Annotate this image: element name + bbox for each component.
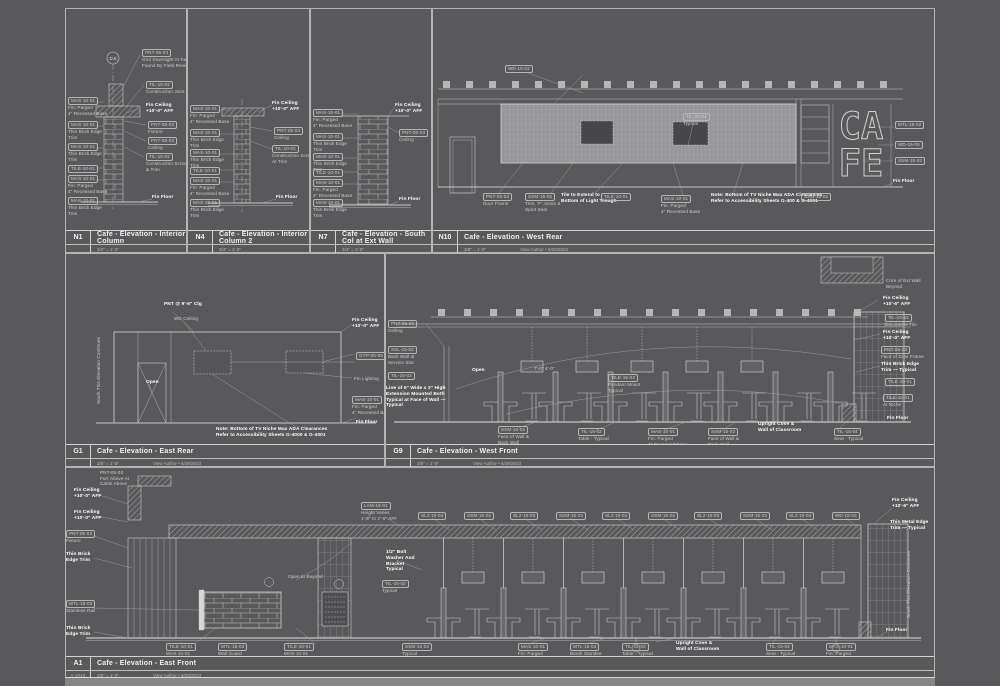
viewport-n4[interactable]: MAS-10-01Fin: Parged4" Recessed BaseMAS-… [187, 8, 310, 253]
panel-title: Cafe - Elevation - South Col at Ext Wall [336, 231, 431, 244]
panel-number: N10 [433, 231, 458, 244]
wall-opening [581, 121, 613, 144]
panel-meta-left [311, 245, 336, 253]
drawing-g1 [66, 254, 384, 444]
keynote-bubble [265, 578, 274, 587]
drawing-a1 [66, 468, 934, 656]
viewport-title-a1: A1 Cafe - Elevation - East Front A-101S … [66, 656, 934, 678]
panel-meta: View Author • 6/29/2023 [149, 461, 201, 466]
viewport-n7[interactable]: MAS-10-01Fin: Parged4" Recessed BaseMAS-… [310, 8, 432, 253]
soffit [138, 476, 171, 486]
drawing-area-n4: MAS-10-01Fin: Parged4" Recessed BaseMAS-… [188, 9, 309, 230]
drawing-area-n10: CA FE WD-15-02TIL-10-02TypicalPNT-05-03D… [433, 9, 934, 230]
panel-number: N7 [311, 231, 336, 244]
panel-meta-left [66, 459, 91, 467]
grid-bubble-label: D.6 [109, 56, 117, 61]
panel-meta: View Author • 6/29/2023 [516, 247, 568, 252]
drawing-area-n7: MAS-10-01Fin: Parged4" Recessed BaseMAS-… [311, 9, 431, 230]
tiled-wall [868, 524, 908, 638]
tv-niche [194, 351, 231, 374]
booth-partition-poles [444, 538, 804, 588]
panel-scale: 3/4" = 1'-0" [336, 247, 394, 252]
viewport-n10[interactable]: CA FE WD-15-02TIL-10-02TypicalPNT-05-03D… [432, 8, 935, 253]
panel-meta-left [66, 245, 91, 253]
wall-opening [673, 122, 708, 145]
panel-scale: 3/4" = 1'-0" [213, 247, 271, 252]
panel-number: A1 [66, 657, 91, 670]
panel-title: Cafe - Elevation - Interior Column [91, 231, 186, 244]
sheet-edge-strip [65, 677, 935, 686]
drawing-g9 [386, 254, 934, 444]
drawing-n7 [311, 9, 431, 230]
panel-title: Cafe - Elevation - West Front [411, 445, 518, 458]
keynote-bubble [632, 644, 640, 652]
keynote-bubble [832, 644, 840, 652]
panel-meta-left [433, 245, 458, 253]
drawing-area-n1: D.6 MAS-10-01Fin: Parged4" Recessed Base… [66, 9, 186, 230]
panel-title: Cafe - Elevation - West Rear [458, 231, 562, 244]
wall-outline [114, 332, 341, 423]
viewport-title-g9: G9 Cafe - Elevation - West Front 3/8" = … [386, 444, 934, 466]
drawing-n1: D.6 [66, 9, 186, 230]
panel-number: G9 [386, 445, 411, 458]
panel-title: Cafe - Elevation - East Front [91, 657, 196, 670]
tiled-wall [854, 312, 904, 422]
viewport-title-n1: N1 Cafe - Elevation - Interior Column 3/… [66, 230, 186, 252]
drawing-n10: CA FE [433, 9, 934, 230]
viewport-a1[interactable]: PNT-05-03Furr Above AtCable AboveFin Cei… [65, 467, 935, 679]
drawing-area-g9: PNT-05-03CeilingSSL-15-02Back Wall atSer… [386, 254, 934, 444]
panel-title: Cafe - Elevation - Interior Column 2 [213, 231, 309, 244]
panel-meta-left [386, 459, 411, 467]
panel-number: G1 [66, 445, 91, 458]
viewport-g1[interactable]: PNT @ 9'-6" ClgWD CeilingOpenSouth This … [65, 253, 385, 467]
panel-scale: 3/8" = 1'-0" [91, 461, 149, 466]
cafe-sign: CA FE [839, 105, 884, 185]
viewport-g9[interactable]: PNT-05-03CeilingSSL-15-02Back Wall atSer… [385, 253, 935, 467]
cafe-sign-line2: FE [839, 142, 884, 185]
panel-number: N4 [188, 231, 213, 244]
panel-scale: 3/8" = 1'-0" [458, 247, 516, 252]
drawing-area-a1: PNT-05-03Furr Above AtCable AboveFin Cei… [66, 468, 934, 656]
drawing-area-g1: PNT @ 9'-6" ClgWD CeilingOpenSouth This … [66, 254, 384, 444]
panel-meta-left [188, 245, 213, 253]
viewport-n1[interactable]: D.6 MAS-10-01Fin: Parged4" Recessed Base… [65, 8, 187, 253]
panel-number: N1 [66, 231, 91, 244]
viewport-title-g1: G1 Cafe - Elevation - East Rear 3/8" = 1… [66, 444, 384, 466]
drawing-n4 [188, 9, 309, 230]
panel-scale: 3/4" = 1'-0" [91, 247, 149, 252]
viewport-title-n10: N10 Cafe - Elevation - West Rear 3/8" = … [433, 230, 934, 252]
masonry-half-wall [204, 592, 281, 628]
panel-title: Cafe - Elevation - East Rear [91, 445, 194, 458]
viewport-title-n4: N4 Cafe - Elevation - Interior Column 2 … [188, 230, 309, 252]
panel-scale: 3/8" = 1'-0" [411, 461, 469, 466]
viewport-title-n7: N7 Cafe - Elevation - South Col at Ext W… [311, 230, 431, 252]
soffit-band [169, 525, 861, 538]
panel-meta: View Author • 6/29/2023 [469, 461, 521, 466]
shelving [801, 105, 829, 163]
door [450, 137, 475, 193]
